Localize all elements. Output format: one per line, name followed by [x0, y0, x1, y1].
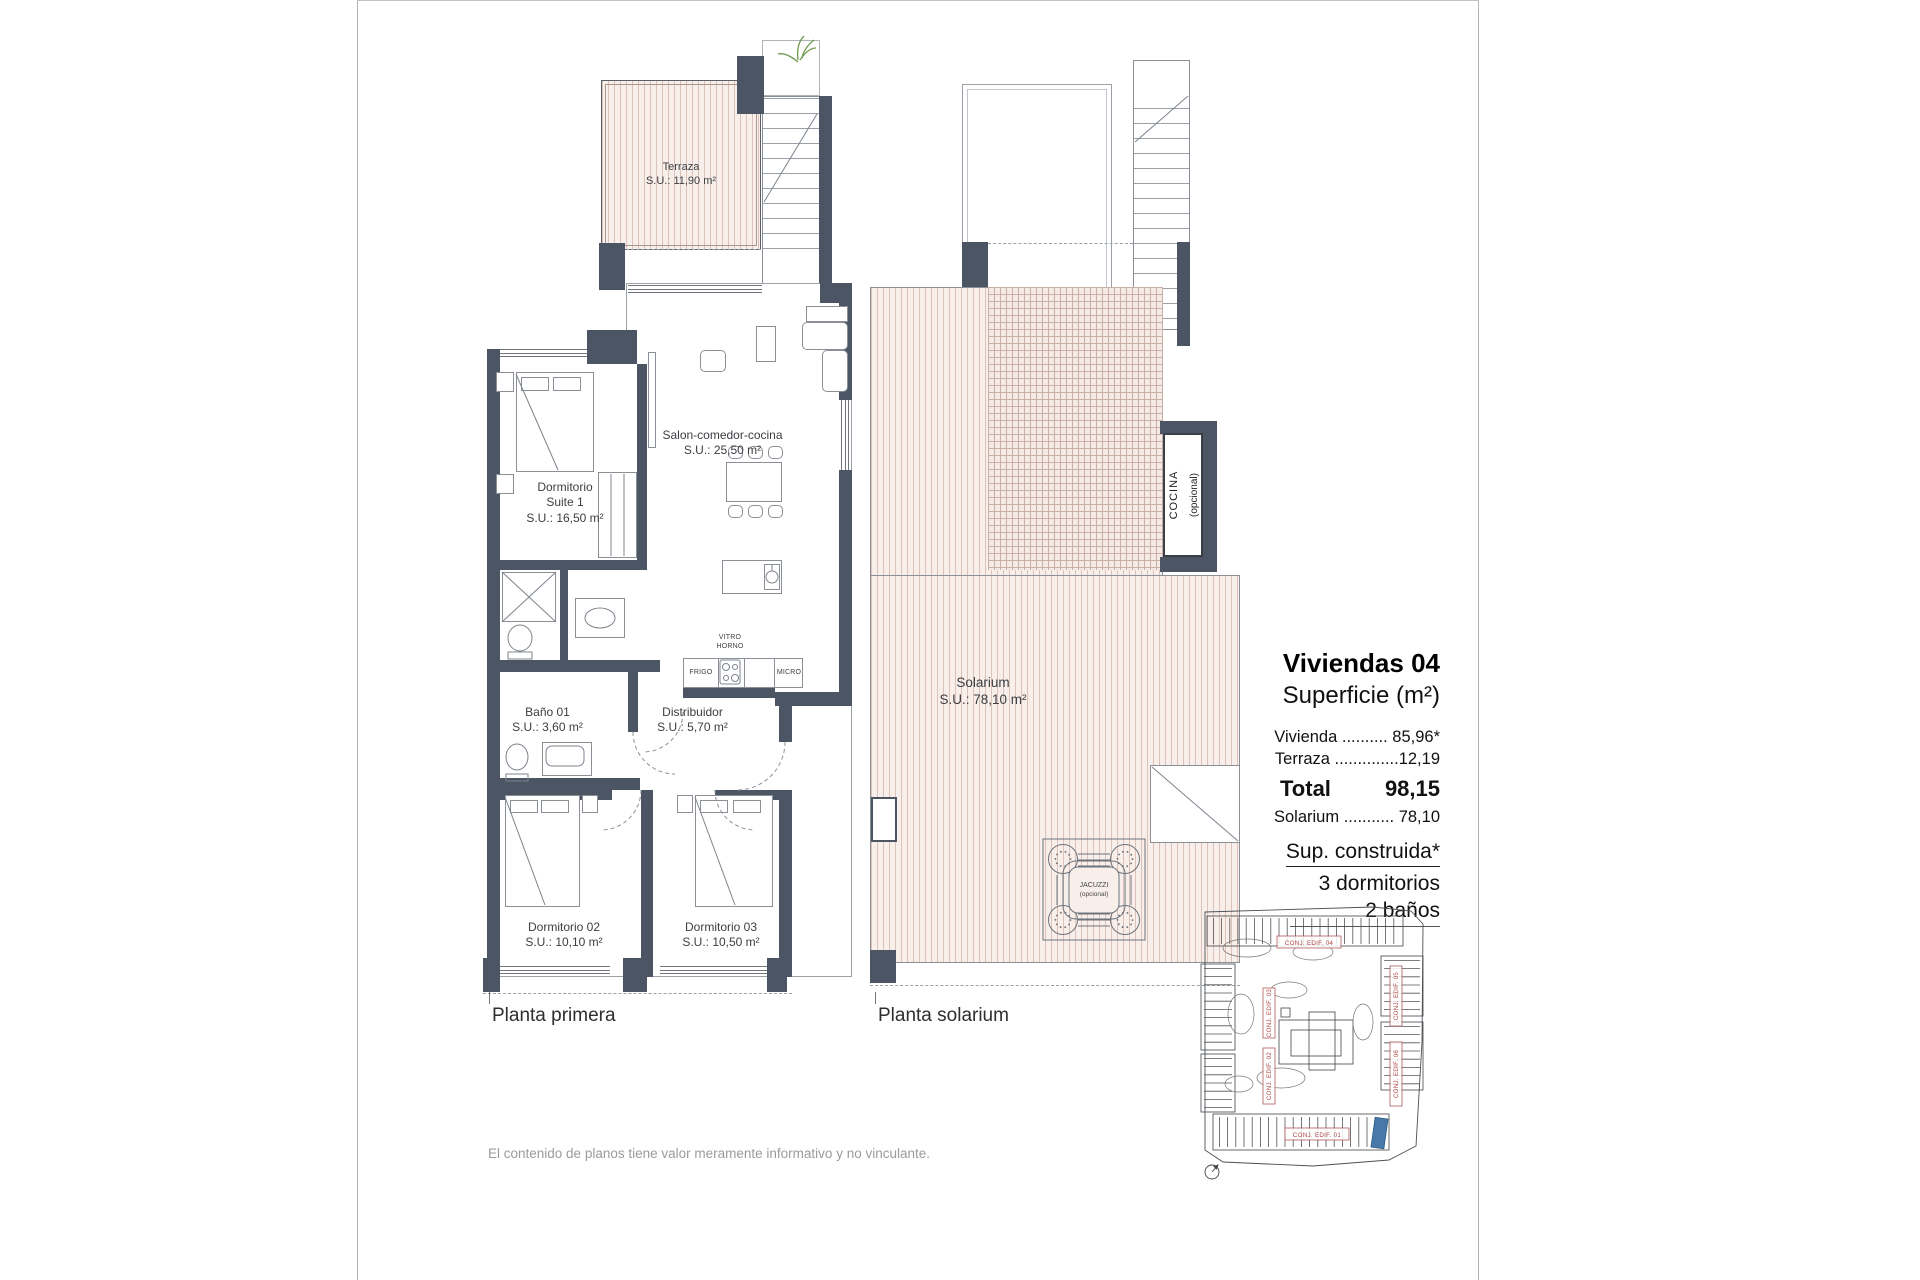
chair	[728, 505, 743, 518]
bano01-label: Baño 01 S.U.: 3,60 m²	[505, 705, 590, 736]
sofa-seat	[802, 322, 848, 350]
wall-kitchen	[683, 688, 775, 698]
dorm02-label: Dormitorio 02 S.U.: 10,10 m²	[503, 920, 625, 951]
wall-segment	[870, 950, 896, 983]
total-value: 98,15	[1385, 776, 1440, 802]
planter	[871, 797, 897, 842]
label-edif-06: CONJ. EDIF. 06	[1393, 1050, 1400, 1098]
chair	[748, 505, 763, 518]
sofa-chaise	[822, 350, 848, 392]
label-edif-04: CONJ. EDIF. 04	[1285, 940, 1333, 947]
sheet-border-top	[357, 0, 1479, 1]
wall-segment	[1203, 433, 1217, 557]
pillow	[700, 800, 728, 813]
label-edif-03: CONJ. EDIF. 03	[1266, 989, 1273, 1037]
counter-divider	[718, 659, 719, 687]
wall-segment	[737, 56, 764, 114]
total-row: Total 98,15	[1280, 776, 1440, 802]
pillow	[553, 377, 581, 391]
bathrooms-line: 2 baños	[1190, 897, 1440, 924]
unit-title: Viviendas 04	[1190, 648, 1440, 679]
level-change-line	[988, 243, 1133, 244]
central-building	[1279, 1020, 1353, 1064]
floor-plan-sheet: Terraza S.U.: 11,90 m²	[0, 0, 1920, 1280]
salon-label: Salon-comedor-cocina S.U.: 25,50 m²	[650, 428, 795, 459]
nightstand	[677, 795, 693, 813]
armchair	[700, 350, 726, 372]
microwave-label: MICRO	[774, 669, 804, 676]
cocina-label: COCINA (opcional)	[1163, 433, 1203, 557]
site-green-areas	[1223, 939, 1373, 1092]
label-edif-05: CONJ. EDIF. 05	[1393, 972, 1400, 1020]
solarium-label: Solarium S.U.: 78,10 m²	[918, 674, 1048, 709]
wall-segment	[599, 243, 625, 290]
dorm03-window	[660, 966, 770, 974]
kitchen-counter: FRIGO MICRO	[683, 658, 803, 688]
shower	[502, 572, 556, 622]
bano-sink	[542, 742, 592, 776]
terrace-slider-door	[628, 285, 762, 293]
chair	[768, 505, 783, 518]
salon-window	[841, 400, 849, 470]
ensuite-sink	[575, 598, 625, 638]
pillow	[521, 377, 549, 391]
area-row-vivienda: Vivienda .......... 85,96*	[1190, 726, 1440, 748]
suite-window	[500, 349, 588, 357]
coffee-table	[756, 326, 776, 362]
pergola-grid	[988, 287, 1163, 570]
wall-kitchen-step	[775, 692, 852, 706]
wall-suite-bottom	[487, 560, 647, 570]
dorm03-label: Dormitorio 03 S.U.: 10,50 m²	[660, 920, 782, 951]
total-label: Total	[1280, 776, 1331, 802]
suite-label: Dormitorio Suite 1 S.U.: 16,50 m²	[505, 480, 625, 526]
terraza-threshold	[601, 249, 761, 250]
caption-tick	[489, 992, 490, 1004]
pillow	[541, 800, 569, 813]
pillar	[767, 958, 787, 992]
plan1-caption: Planta primera	[492, 1005, 616, 1027]
distribuidor-label: Distribuidor S.U.: 5,70 m²	[635, 705, 750, 736]
caption-tick	[875, 992, 876, 1004]
cooktop-label: VITRO HORNO	[700, 634, 760, 652]
sofa-back	[806, 306, 848, 322]
wall-segment	[819, 96, 832, 304]
highlighted-unit	[1371, 1117, 1388, 1149]
counter-divider	[744, 659, 745, 687]
wall-segment	[779, 706, 792, 742]
terraza-label: Terraza S.U.: 11,90 m²	[611, 160, 751, 188]
fridge-label: FRIGO	[684, 669, 718, 676]
label-edif-01: CONJ. EDIF. 01	[1293, 1132, 1341, 1139]
sheet-border-right	[1478, 0, 1479, 1280]
unit-subtitle: Superficie (m²)	[1190, 682, 1440, 710]
bedrooms-line: 3 dormitorios	[1190, 870, 1440, 897]
info-panel: Viviendas 04 Superficie (m²) Vivienda ..…	[1190, 648, 1440, 827]
nightstand	[582, 795, 598, 813]
balcony-edge	[483, 993, 792, 994]
pillow	[510, 800, 538, 813]
north-compass-icon	[1205, 1165, 1219, 1179]
pillar	[623, 958, 647, 992]
pillow	[733, 800, 761, 813]
wall-dorm-divider	[641, 790, 653, 977]
island-sink	[764, 564, 780, 590]
sheet-border-left	[357, 0, 358, 1280]
nightstand	[496, 372, 514, 392]
stair-landing	[762, 40, 820, 96]
dining-table	[726, 462, 782, 502]
wall-bano-bottom	[487, 778, 640, 790]
wall-suite-salon	[637, 364, 647, 560]
footer-disclaimer: El contenido de planos tiene valor meram…	[488, 1146, 930, 1161]
wall-segment	[1160, 557, 1217, 572]
label-edif-02: CONJ. EDIF. 02	[1266, 1052, 1273, 1100]
area-row-terraza: Terraza ..............12,19	[1190, 748, 1440, 770]
dorm02-window	[500, 966, 610, 974]
wall-ensuite	[560, 570, 568, 660]
pillar	[483, 958, 500, 992]
wall-bath-top	[487, 660, 660, 672]
wall-segment	[1177, 242, 1190, 346]
plan2-caption: Planta solarium	[878, 1005, 1009, 1027]
built-title: Sup. construida*	[1286, 838, 1440, 867]
underline-rule	[1290, 926, 1440, 927]
stair-treads	[763, 98, 819, 256]
built-surface-block: Sup. construida* 3 dormitorios 2 baños	[1190, 838, 1440, 927]
area-row-solarium: Solarium ........... 78,10	[1190, 808, 1440, 827]
wall-right	[839, 470, 852, 700]
wall-segment	[587, 330, 637, 364]
solarium-edge	[870, 985, 1240, 986]
building-labels: CONJ. EDIF. 04 CONJ. EDIF. 01 CONJ. EDIF…	[1263, 936, 1402, 1140]
